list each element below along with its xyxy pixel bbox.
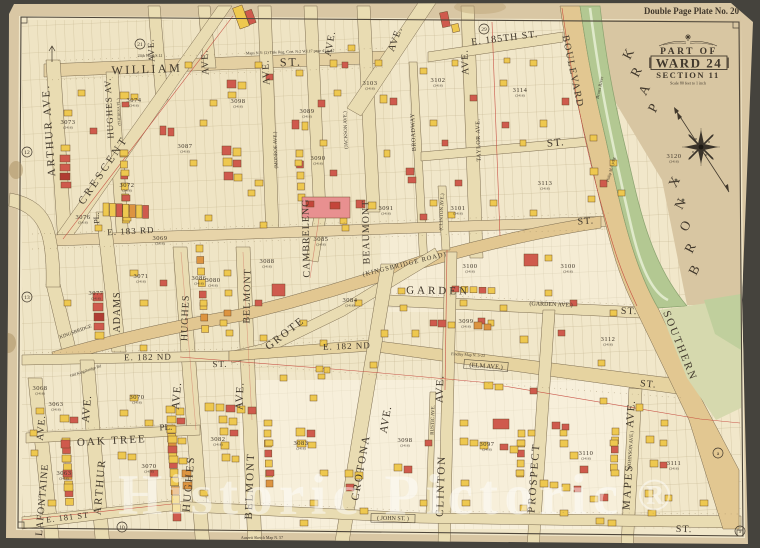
svg-text:(2416): (2416) bbox=[296, 447, 306, 451]
svg-text:AVE.: AVE. bbox=[145, 38, 156, 62]
svg-text:(2416): (2416) bbox=[313, 162, 323, 166]
svg-text:(2416): (2416) bbox=[122, 189, 132, 193]
svg-text:AVE.: AVE. bbox=[234, 382, 247, 410]
svg-text:AVE.: AVE. bbox=[80, 394, 94, 423]
svg-text:(2416): (2416) bbox=[540, 187, 550, 191]
svg-text:(2416): (2416) bbox=[400, 444, 410, 448]
svg-text:E. 182 ND: E. 182 ND bbox=[124, 352, 172, 363]
svg-text:BEAUMONT: BEAUMONT bbox=[360, 200, 372, 265]
svg-text:ST.: ST. bbox=[676, 524, 693, 535]
svg-text:(2416): (2416) bbox=[433, 84, 443, 88]
svg-text:(2416): (2416) bbox=[563, 270, 573, 274]
svg-text:Auszeit Sketch Map N. 57: Auszeit Sketch Map N. 57 bbox=[241, 535, 283, 540]
svg-text:RUSTIC AVE.: RUSTIC AVE. bbox=[430, 405, 436, 435]
svg-text:21: 21 bbox=[137, 42, 143, 48]
svg-text:(2416): (2416) bbox=[453, 212, 463, 216]
svg-text:24th Ward S.11: 24th Ward S.11 bbox=[138, 53, 163, 58]
svg-text:AVE.: AVE. bbox=[260, 59, 272, 85]
svg-text:ST.: ST. bbox=[546, 136, 565, 150]
svg-text:AVE.: AVE. bbox=[170, 381, 184, 410]
svg-text:AVE.: AVE. bbox=[434, 375, 447, 403]
svg-text:(2416): (2416) bbox=[515, 94, 525, 98]
svg-text:Scale 80 feet to 1 inch: Scale 80 feet to 1 inch bbox=[670, 81, 706, 86]
svg-text:(2416): (2416) bbox=[603, 343, 613, 347]
svg-text:ST.: ST. bbox=[640, 378, 657, 390]
svg-text:13: 13 bbox=[24, 295, 30, 301]
svg-text:BELMONT: BELMONT bbox=[242, 268, 254, 324]
svg-text:ST.: ST. bbox=[212, 359, 227, 369]
svg-text:SECTION 11: SECTION 11 bbox=[656, 70, 719, 80]
svg-text:Double Page Plate No. 20: Double Page Plate No. 20 bbox=[644, 7, 739, 17]
svg-text:AVE.: AVE. bbox=[460, 49, 472, 75]
svg-text:CAMBRELENG: CAMBRELENG bbox=[300, 199, 312, 278]
svg-text:Historic Pictoric: Historic Pictoric bbox=[118, 464, 618, 527]
svg-text:(2416): (2416) bbox=[155, 242, 165, 246]
svg-text:(2416): (2416) bbox=[461, 325, 471, 329]
svg-text:(2416): (2416) bbox=[345, 304, 355, 308]
svg-text:AVE.: AVE. bbox=[199, 49, 211, 75]
svg-text:(2416): (2416) bbox=[35, 392, 45, 396]
svg-text:AVE.: AVE. bbox=[624, 399, 638, 428]
svg-text:(2416): (2416) bbox=[302, 115, 312, 119]
svg-text:ST.: ST. bbox=[621, 306, 638, 318]
svg-text:(2416): (2416) bbox=[381, 212, 391, 216]
svg-text:(2416): (2416) bbox=[669, 160, 679, 164]
svg-text:HUGHES: HUGHES bbox=[179, 294, 192, 341]
svg-text:(2416): (2416) bbox=[213, 443, 223, 447]
svg-text:(2416): (2416) bbox=[365, 87, 375, 91]
svg-text:(2416): (2416) bbox=[78, 221, 88, 225]
svg-text:(2416): (2416) bbox=[233, 105, 243, 109]
svg-text:WILLIAM: WILLIAM bbox=[111, 61, 182, 77]
svg-text:ST.: ST. bbox=[280, 55, 303, 70]
svg-text:PL.: PL. bbox=[159, 422, 172, 433]
svg-text:ST.: ST. bbox=[577, 215, 594, 227]
svg-text:(2416): (2416) bbox=[465, 270, 475, 274]
svg-text:(2416): (2416) bbox=[59, 477, 69, 481]
svg-text:(2416): (2416) bbox=[208, 284, 218, 288]
svg-text:(2416): (2416) bbox=[136, 280, 146, 284]
svg-text:E. 182 ND: E. 182 ND bbox=[323, 340, 371, 352]
svg-text:(2416): (2416) bbox=[129, 104, 139, 108]
svg-text:(2416): (2416) bbox=[262, 265, 272, 269]
svg-text:(2416): (2416) bbox=[180, 150, 190, 154]
svg-text:(2416): (2416) bbox=[316, 243, 326, 247]
svg-text:WARD 24: WARD 24 bbox=[656, 56, 722, 71]
svg-text:PL.: PL. bbox=[92, 212, 101, 224]
svg-text:(2416): (2416) bbox=[581, 457, 591, 461]
svg-text:(2416): (2416) bbox=[63, 126, 73, 130]
svg-text:(2416): (2416) bbox=[194, 282, 204, 286]
svg-text:(2416): (2416) bbox=[51, 408, 61, 412]
svg-text:(2416): (2416) bbox=[91, 297, 101, 301]
svg-text:(2416): (2416) bbox=[132, 401, 142, 405]
svg-text:®: ® bbox=[637, 469, 671, 520]
svg-text:(2416): (2416) bbox=[482, 448, 492, 452]
svg-text:12: 12 bbox=[24, 150, 30, 156]
svg-text:29: 29 bbox=[481, 27, 487, 33]
svg-text:AVE.: AVE. bbox=[35, 414, 48, 441]
svg-text:ADAMS: ADAMS bbox=[112, 291, 123, 332]
